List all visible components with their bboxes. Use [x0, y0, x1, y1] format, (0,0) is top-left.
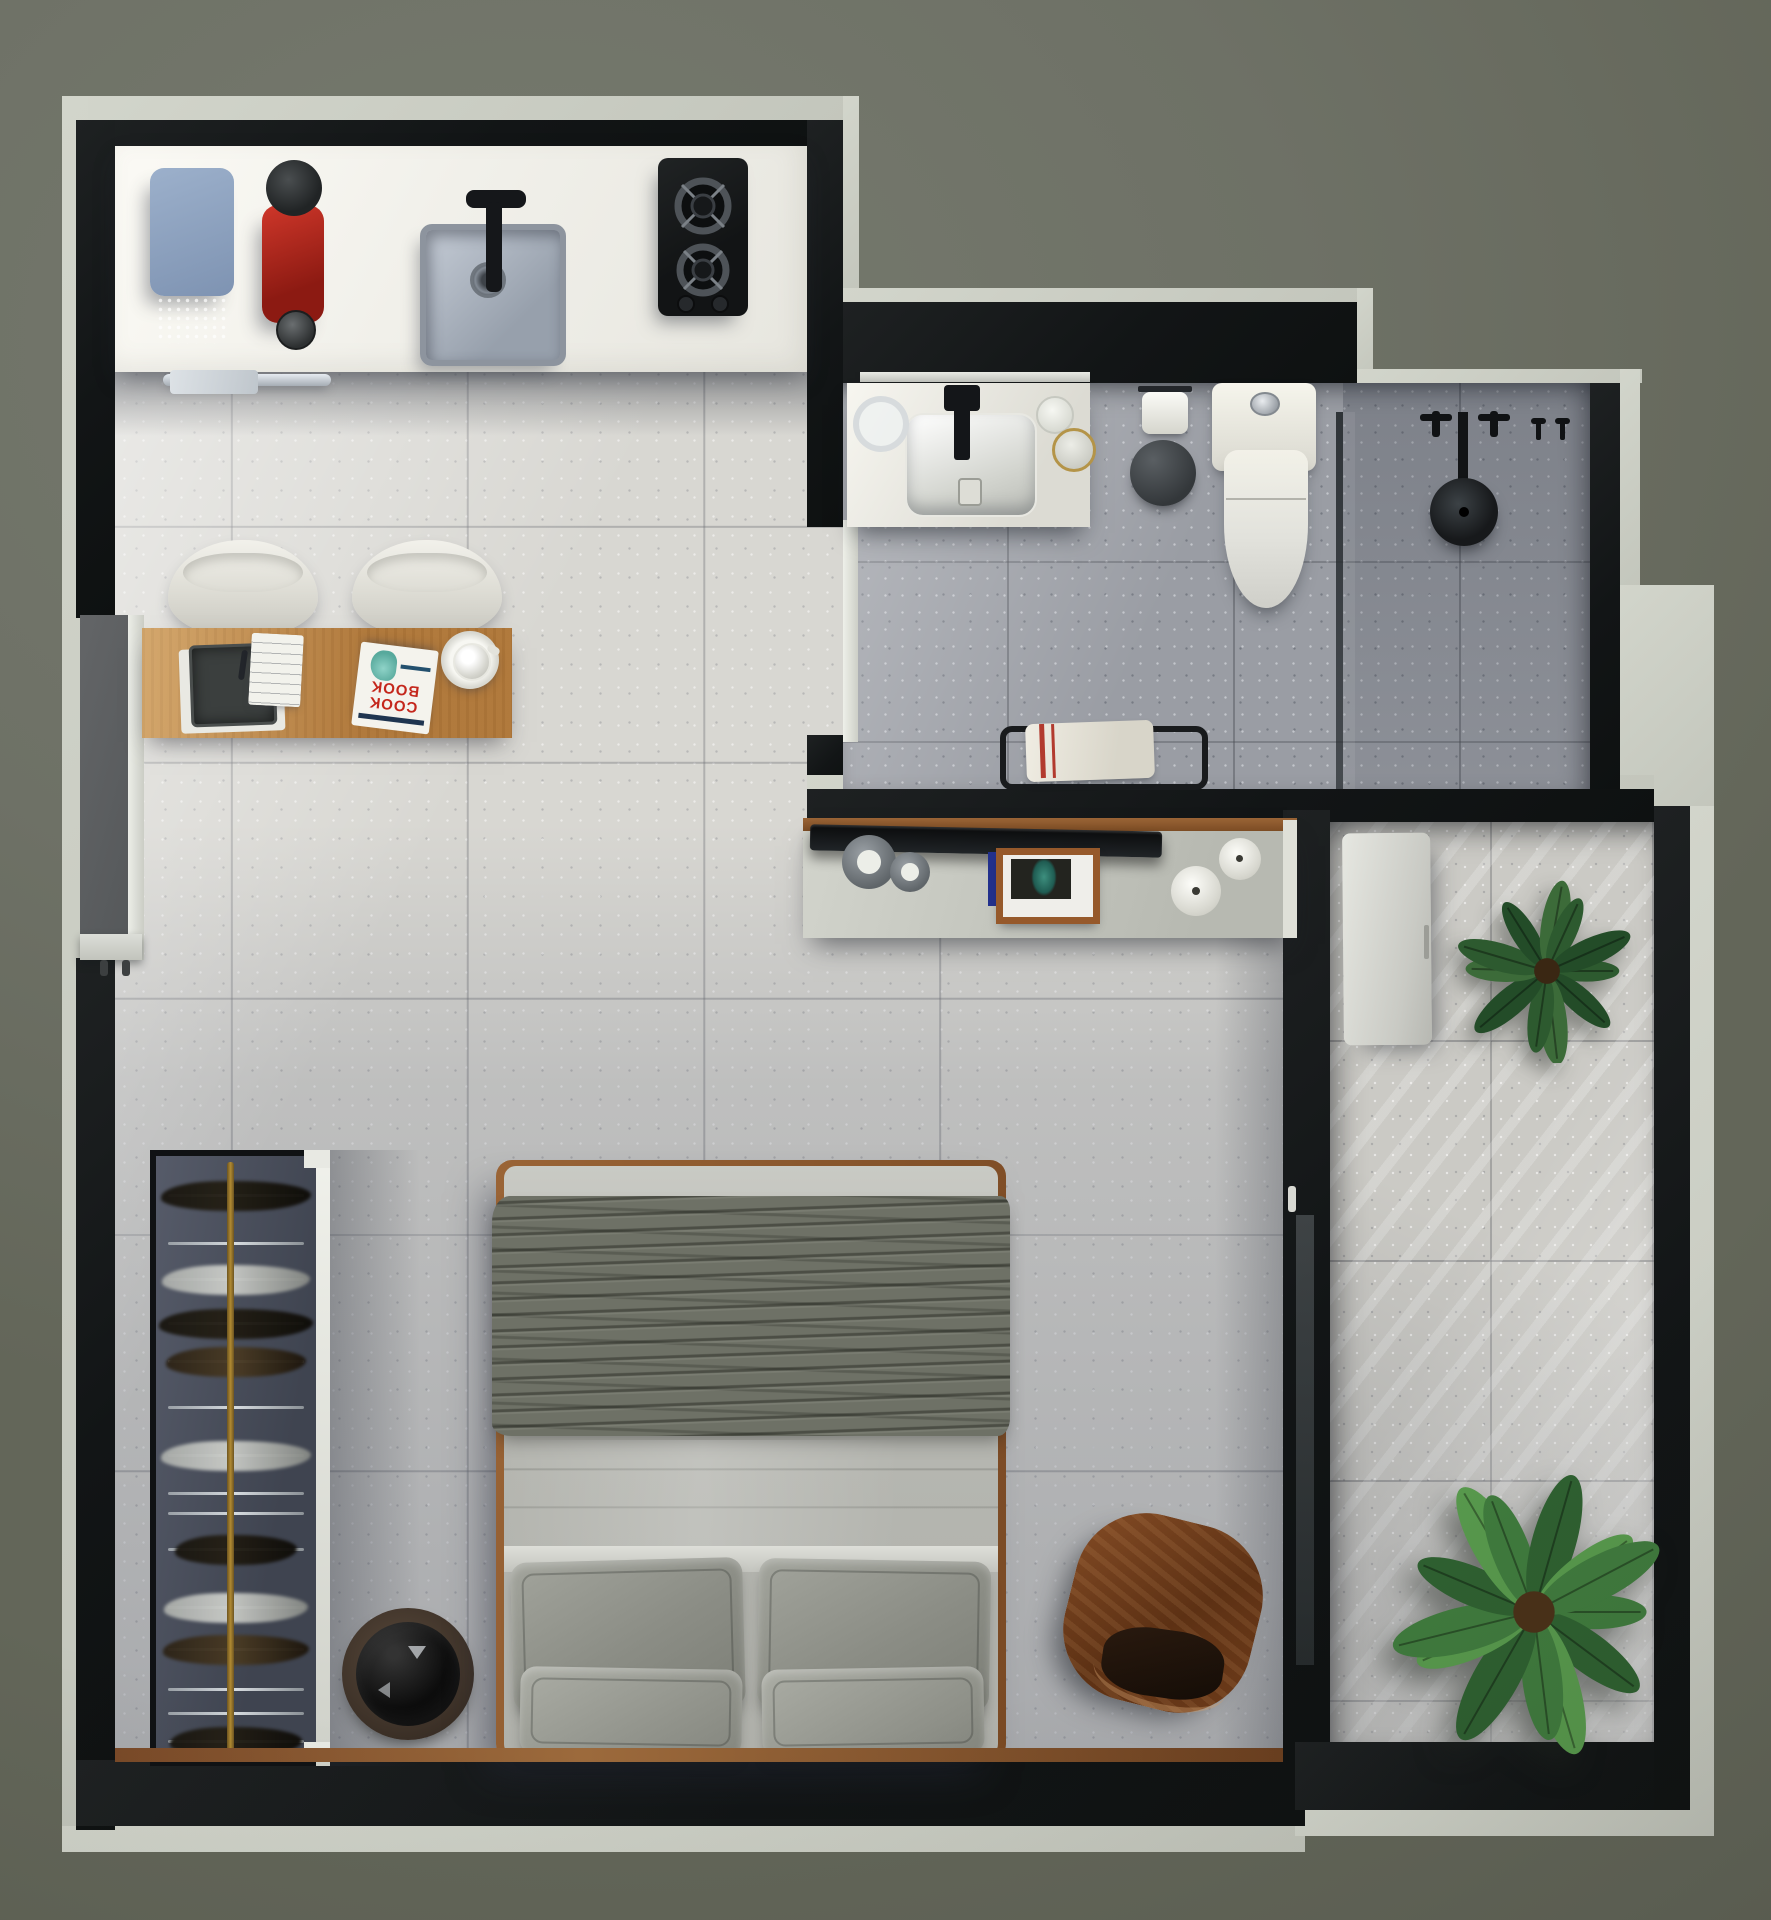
- balcony-cabinet: [1342, 833, 1432, 1046]
- garment: [161, 1181, 311, 1211]
- plaster-band-top: [62, 96, 857, 122]
- hanger-bar: [168, 1242, 304, 1245]
- plaster-band-bottom: [62, 1826, 1305, 1852]
- floor-wood-threshold: [115, 1748, 1283, 1762]
- wardrobe-side-panel: [316, 1150, 330, 1766]
- cooktop: [658, 158, 748, 316]
- speaker-triangle-icon: [378, 1682, 390, 1698]
- shower-valve: [1420, 414, 1452, 421]
- sliding-door-glass: [1296, 1215, 1314, 1665]
- wall-left-upper: [76, 120, 115, 618]
- wardrobe-track-tab: [304, 1150, 330, 1168]
- wall-bath-top: [843, 302, 1357, 383]
- picture-frame: [996, 848, 1100, 924]
- garment: [175, 1535, 297, 1565]
- entry-door-handle: [100, 960, 108, 976]
- shower-valve: [1478, 414, 1510, 421]
- hand-towel: [170, 370, 258, 394]
- cooktop-burners-icon: [658, 158, 748, 316]
- shower-head-center: [1459, 507, 1469, 517]
- wall-shower-right: [1590, 383, 1620, 789]
- bed-sheet-creases: [504, 1440, 998, 1550]
- floor-plan-render: COOK BOOK: [0, 0, 1771, 1920]
- wall-top: [76, 120, 843, 146]
- gold-rim-jar: [1052, 428, 1096, 472]
- wall-kitchen-bath-divider: [807, 120, 843, 527]
- coffee-machine-head: [266, 160, 322, 216]
- plaster-band-balcony-right: [1690, 806, 1714, 1836]
- metal-vase-top: [901, 863, 919, 881]
- entry-door: [80, 934, 142, 960]
- balcony-plant-large: [1386, 1464, 1686, 1764]
- bathroom-door-jamb: [843, 520, 858, 742]
- shower-glass-sheen: [1343, 412, 1355, 789]
- hanger-bar: [168, 1712, 304, 1715]
- bath-faucet-spout: [954, 402, 970, 460]
- cookbook: COOK BOOK: [351, 642, 439, 735]
- wardrobe-interior: [156, 1156, 316, 1760]
- coffee-machine-cup: [276, 310, 316, 350]
- white-vase-mouth: [1192, 887, 1200, 895]
- metal-vase-top: [857, 850, 881, 874]
- hanger-bar: [168, 1688, 304, 1691]
- vanity-mirror-strip: [860, 372, 1090, 382]
- garment: [163, 1635, 309, 1665]
- book-spine: [988, 852, 996, 906]
- garment: [164, 1593, 308, 1623]
- sliding-door-handle: [1288, 1186, 1296, 1212]
- garment: [162, 1265, 310, 1295]
- pillow-front-right: [761, 1666, 985, 1758]
- round-speaker: [356, 1622, 460, 1726]
- wall-left-lower: [76, 958, 115, 1830]
- speaker-triangle-icon: [408, 1646, 426, 1659]
- basin-drain: [958, 478, 982, 506]
- pillow-front-left: [519, 1666, 743, 1758]
- coffee-cup: [453, 643, 491, 681]
- cookbook-title: COOK BOOK: [353, 675, 434, 716]
- garment: [166, 1347, 306, 1377]
- hanger-bar: [168, 1406, 304, 1409]
- plaster-band-balcony-bottom: [1295, 1810, 1714, 1836]
- white-vase-mouth: [1236, 855, 1243, 862]
- bed-blanket: [492, 1196, 1010, 1436]
- plaster-band-shower-right: [1620, 369, 1640, 589]
- toilet-paper-roll: [1142, 392, 1188, 434]
- waste-bin: [1130, 440, 1196, 506]
- hanger-bar: [168, 1492, 304, 1495]
- cookbook-stripe-bottom: [400, 665, 430, 673]
- towel-hook: [1560, 418, 1565, 440]
- glass-cup: [853, 396, 909, 452]
- notepad: [248, 633, 304, 708]
- wardrobe-clothes-rail: [227, 1162, 234, 1754]
- garment: [159, 1309, 313, 1339]
- wall-bottom: [76, 1760, 1305, 1826]
- toilet-seat-seam: [1226, 498, 1306, 500]
- entry-door-handle: [122, 960, 130, 976]
- toilet-flush-button: [1250, 392, 1280, 416]
- hanger-bar: [168, 1512, 304, 1515]
- towel-hook: [1536, 418, 1541, 440]
- entry-corridor: [80, 615, 128, 960]
- plaster-band-kitchen-right: [843, 96, 859, 296]
- garment: [161, 1441, 311, 1471]
- plaster-band-bath-top: [843, 288, 1373, 302]
- balcony-cabinet-handle: [1424, 925, 1429, 959]
- console-endcap: [1283, 820, 1297, 938]
- shower-glass-partition: [1336, 412, 1343, 789]
- picture-frame-art: [1011, 859, 1071, 899]
- coffee-machine-body: [262, 205, 324, 323]
- balcony-plant-top: [1455, 879, 1639, 1063]
- toaster: [150, 168, 234, 296]
- plaster-band-shower-top: [1357, 369, 1642, 383]
- toaster-base: [156, 296, 228, 344]
- kitchen-faucet-spout: [486, 202, 502, 292]
